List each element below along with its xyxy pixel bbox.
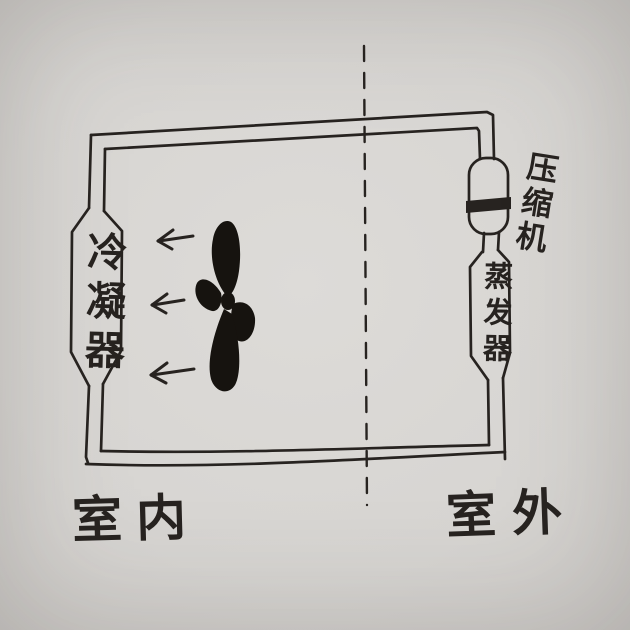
pipe-compressor-neck <box>498 232 499 250</box>
pipe-top-outer <box>91 112 494 159</box>
pipe-bottom-outer <box>86 452 505 465</box>
left-arrow-icon <box>151 363 194 383</box>
pipe-left-upper-inner <box>104 149 105 211</box>
compressor-piston-band <box>466 197 511 213</box>
pipe-left-lower-inner <box>101 384 103 451</box>
evaporator-label: 蒸发器 <box>474 261 518 370</box>
indoor-label: 室内 <box>71 477 201 552</box>
left-arrow-icon <box>152 294 184 313</box>
pipe-loop <box>71 112 510 465</box>
pipe-compressor-neck <box>483 233 484 252</box>
left-arrow-icon <box>158 230 193 249</box>
pipe-top-inner <box>105 128 480 159</box>
dashed-divider-line <box>364 46 367 505</box>
airflow-arrows <box>151 230 194 383</box>
fan-blade-left <box>195 279 221 311</box>
outdoor-label: 室外 <box>445 472 579 549</box>
fan-blade-top <box>212 221 240 296</box>
compressor-shape <box>469 158 508 234</box>
paper-background: 冷凝器 压缩机 蒸发器 室内 室外 <box>0 0 630 630</box>
fan-icon <box>195 221 255 391</box>
pipe-right-lower-inner <box>488 380 489 445</box>
pipe-left-lower-outer <box>86 386 89 463</box>
pipe-bottom-inner <box>101 445 489 452</box>
pipe-left-upper-outer <box>89 135 91 208</box>
condenser-label: 冷凝器 <box>71 230 133 378</box>
pipe-right-lower-outer <box>503 378 505 459</box>
